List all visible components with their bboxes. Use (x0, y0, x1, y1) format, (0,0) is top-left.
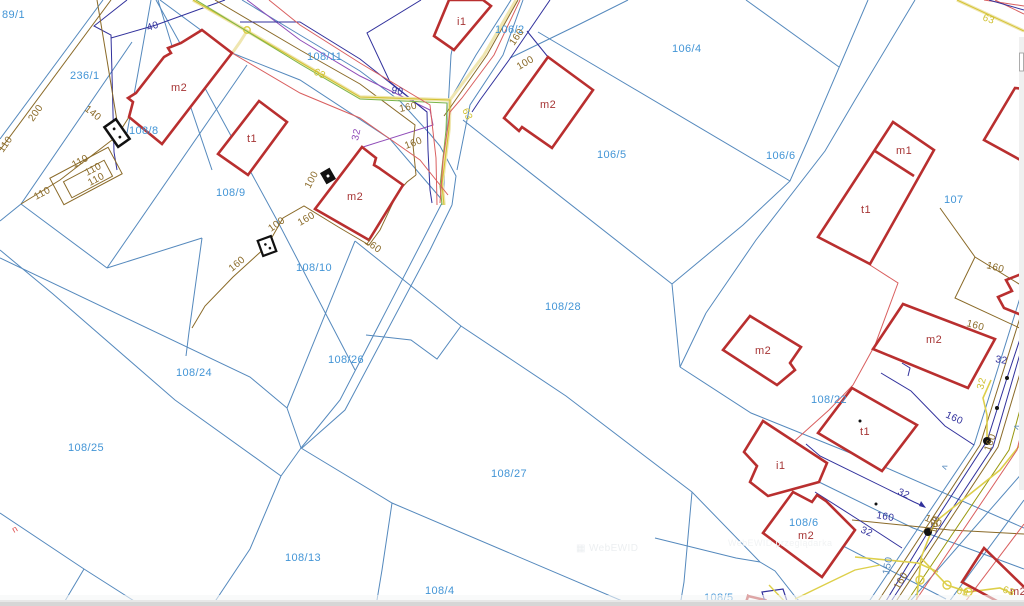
svg-text:108/26: 108/26 (328, 354, 364, 366)
svg-text:WebEWID przeglądarka: WebEWID przeglądarka (728, 538, 832, 548)
svg-text:t1: t1 (860, 426, 870, 438)
svg-text:107: 107 (944, 194, 964, 206)
svg-text:90: 90 (390, 85, 404, 98)
svg-text:i1: i1 (776, 460, 785, 472)
svg-text:m2: m2 (755, 345, 771, 357)
svg-text:t1: t1 (247, 133, 257, 145)
svg-text:32: 32 (994, 354, 1008, 367)
svg-text:108/27: 108/27 (491, 468, 527, 480)
svg-text:m2: m2 (171, 82, 187, 94)
svg-text:106/6: 106/6 (766, 150, 796, 162)
svg-text:236/1: 236/1 (70, 70, 100, 82)
svg-text:108/24: 108/24 (176, 367, 212, 379)
svg-text:t1: t1 (861, 204, 871, 216)
svg-text:108/10: 108/10 (296, 262, 332, 274)
svg-text:108/22: 108/22 (811, 394, 847, 406)
svg-text:106/4: 106/4 (672, 43, 702, 55)
svg-text:89/1: 89/1 (2, 9, 25, 21)
svg-text:108/8: 108/8 (129, 125, 159, 137)
svg-text:108/25: 108/25 (68, 442, 104, 454)
svg-text:106/5: 106/5 (597, 149, 627, 161)
svg-text:i1: i1 (457, 16, 466, 28)
svg-text:108/11: 108/11 (307, 51, 342, 63)
svg-text:m2: m2 (926, 334, 942, 346)
svg-text:m2: m2 (540, 99, 556, 111)
svg-text:m2: m2 (347, 191, 363, 203)
svg-text:108/28: 108/28 (545, 301, 581, 313)
svg-text:108/13: 108/13 (285, 552, 321, 564)
svg-text:m1: m1 (896, 145, 912, 157)
svg-text:108/6: 108/6 (789, 517, 819, 529)
svg-text:▦ WebEWID: ▦ WebEWID (576, 543, 638, 554)
svg-text:108/9: 108/9 (216, 187, 246, 199)
